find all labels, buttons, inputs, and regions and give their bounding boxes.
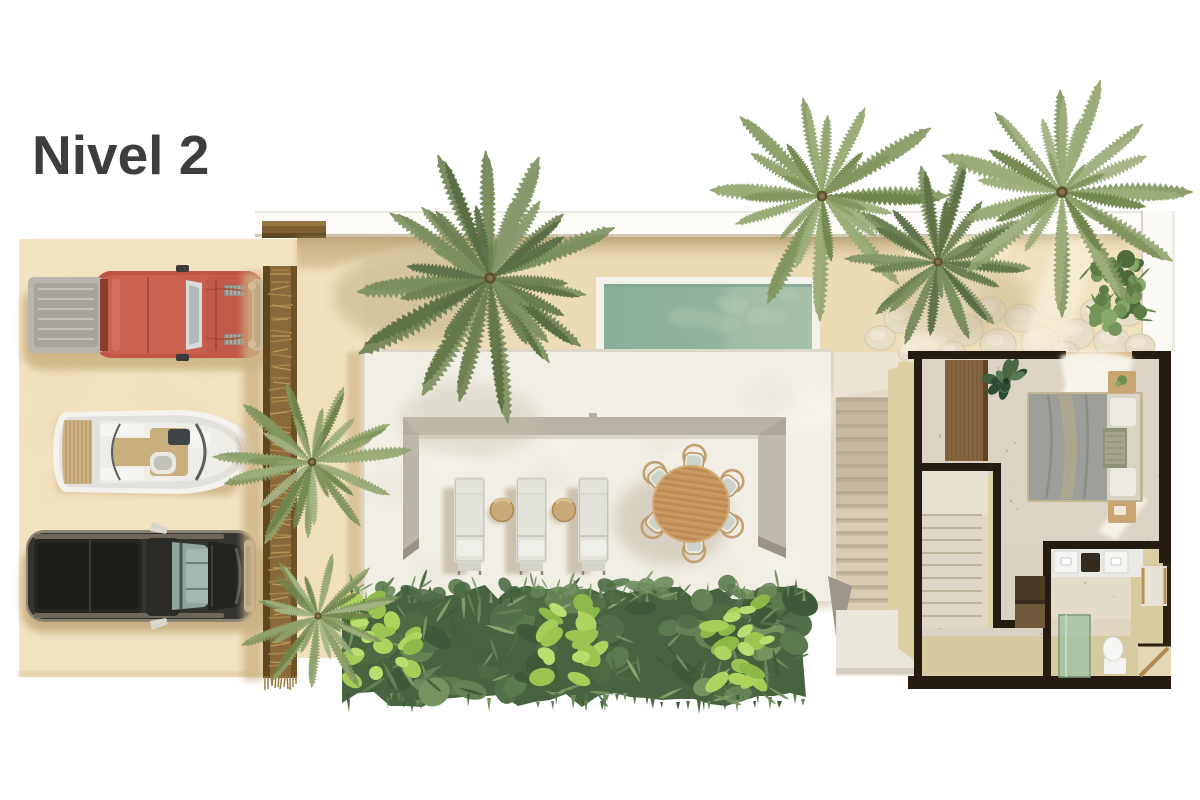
- svg-text:Nivel 2: Nivel 2: [32, 124, 209, 186]
